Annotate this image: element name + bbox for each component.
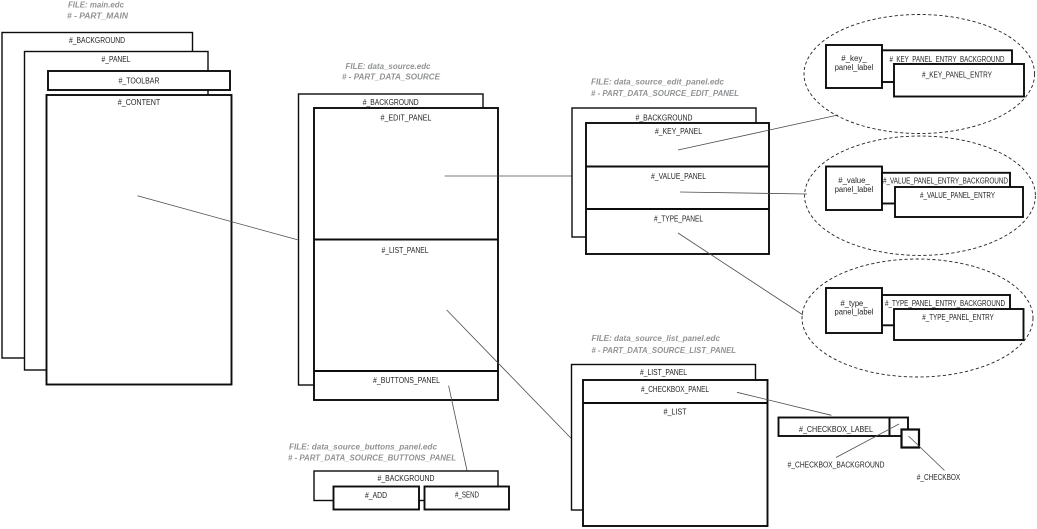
svg-text:#_BACKGROUND: #_BACKGROUND [363, 98, 419, 107]
svg-text:#_BUTTONS_PANEL: #_BUTTONS_PANEL [373, 376, 440, 385]
svg-text:#_BACKGROUND: #_BACKGROUND [636, 113, 693, 122]
svg-text:FILE: data_source_list_panel.e: FILE: data_source_list_panel.edc [592, 333, 721, 343]
svg-text:#_EDIT_PANEL: #_EDIT_PANEL [381, 113, 432, 122]
svg-text:#_VALUE_PANEL_ENTRY: #_VALUE_PANEL_ENTRY [920, 191, 996, 200]
svg-text:# - PART_MAIN: # - PART_MAIN [67, 10, 129, 20]
svg-text:#_TYPE_PANEL: #_TYPE_PANEL [654, 214, 703, 223]
svg-text:# - PART_DATA_SOURCE: # - PART_DATA_SOURCE [342, 71, 440, 81]
svg-text:#_TOOLBAR: #_TOOLBAR [119, 77, 160, 86]
svg-text:# - PART_DATA_SOURCE_LIST_PANE: # - PART_DATA_SOURCE_LIST_PANEL [592, 345, 737, 355]
svg-text:#_VALUE_PANEL_ENTRY_BACKGROUND: #_VALUE_PANEL_ENTRY_BACKGROUND [883, 176, 1008, 185]
svg-text:panel_label: panel_label [835, 185, 874, 194]
svg-text:#_KEY_PANEL: #_KEY_PANEL [655, 127, 702, 136]
svg-text:# - PART_DATA_SOURCE_EDIT_PANE: # - PART_DATA_SOURCE_EDIT_PANEL [591, 88, 739, 98]
svg-text:FILE: data_source_edit_panel.e: FILE: data_source_edit_panel.edc [591, 77, 724, 87]
svg-text:panel_label: panel_label [835, 307, 874, 316]
svg-text:#_LIST: #_LIST [664, 407, 687, 416]
svg-text:#_value_: #_value_ [838, 176, 870, 185]
svg-text:FILE: data_source.edc: FILE: data_source.edc [346, 61, 431, 71]
svg-text:#_KEY_PANEL_ENTRY: #_KEY_PANEL_ENTRY [922, 70, 993, 79]
svg-text:#_key_: #_key_ [841, 54, 867, 63]
svg-text:#_CHECKBOX_PANEL: #_CHECKBOX_PANEL [641, 385, 709, 394]
svg-text:#_VALUE_PANEL: #_VALUE_PANEL [651, 172, 706, 181]
svg-text:panel_label: panel_label [835, 63, 874, 72]
svg-text:#_CONTENT: #_CONTENT [118, 98, 161, 107]
svg-text:#_LIST_PANEL: #_LIST_PANEL [382, 246, 429, 255]
svg-text:FILE: data_source_buttons_pane: FILE: data_source_buttons_panel.edc [289, 442, 437, 452]
svg-text:# - PART_DATA_SOURCE_BUTTONS_P: # - PART_DATA_SOURCE_BUTTONS_PANEL [288, 452, 456, 462]
svg-text:#_BACKGROUND: #_BACKGROUND [69, 36, 125, 45]
svg-text:#_CHECKBOX_BACKGROUND: #_CHECKBOX_BACKGROUND [788, 460, 885, 469]
svg-text:#_ADD: #_ADD [365, 491, 387, 500]
svg-text:#_SEND: #_SEND [455, 490, 479, 499]
svg-text:#_LIST_PANEL: #_LIST_PANEL [640, 368, 687, 377]
svg-text:#_BACKGROUND: #_BACKGROUND [378, 474, 435, 483]
svg-text:#_CHECKBOX: #_CHECKBOX [917, 473, 961, 482]
svg-text:FILE: main.edc: FILE: main.edc [68, 0, 124, 10]
svg-text:#_PANEL: #_PANEL [102, 55, 131, 64]
svg-text:#_TYPE_PANEL_ENTRY_BACKGROUND: #_TYPE_PANEL_ENTRY_BACKGROUND [885, 299, 1005, 308]
svg-text:#_TYPE_PANEL_ENTRY: #_TYPE_PANEL_ENTRY [922, 313, 994, 322]
svg-text:#_CHECKBOX_LABEL: #_CHECKBOX_LABEL [799, 425, 873, 434]
svg-text:#_KEY_PANEL_ENTRY_BACKGROUND: #_KEY_PANEL_ENTRY_BACKGROUND [890, 55, 1005, 64]
